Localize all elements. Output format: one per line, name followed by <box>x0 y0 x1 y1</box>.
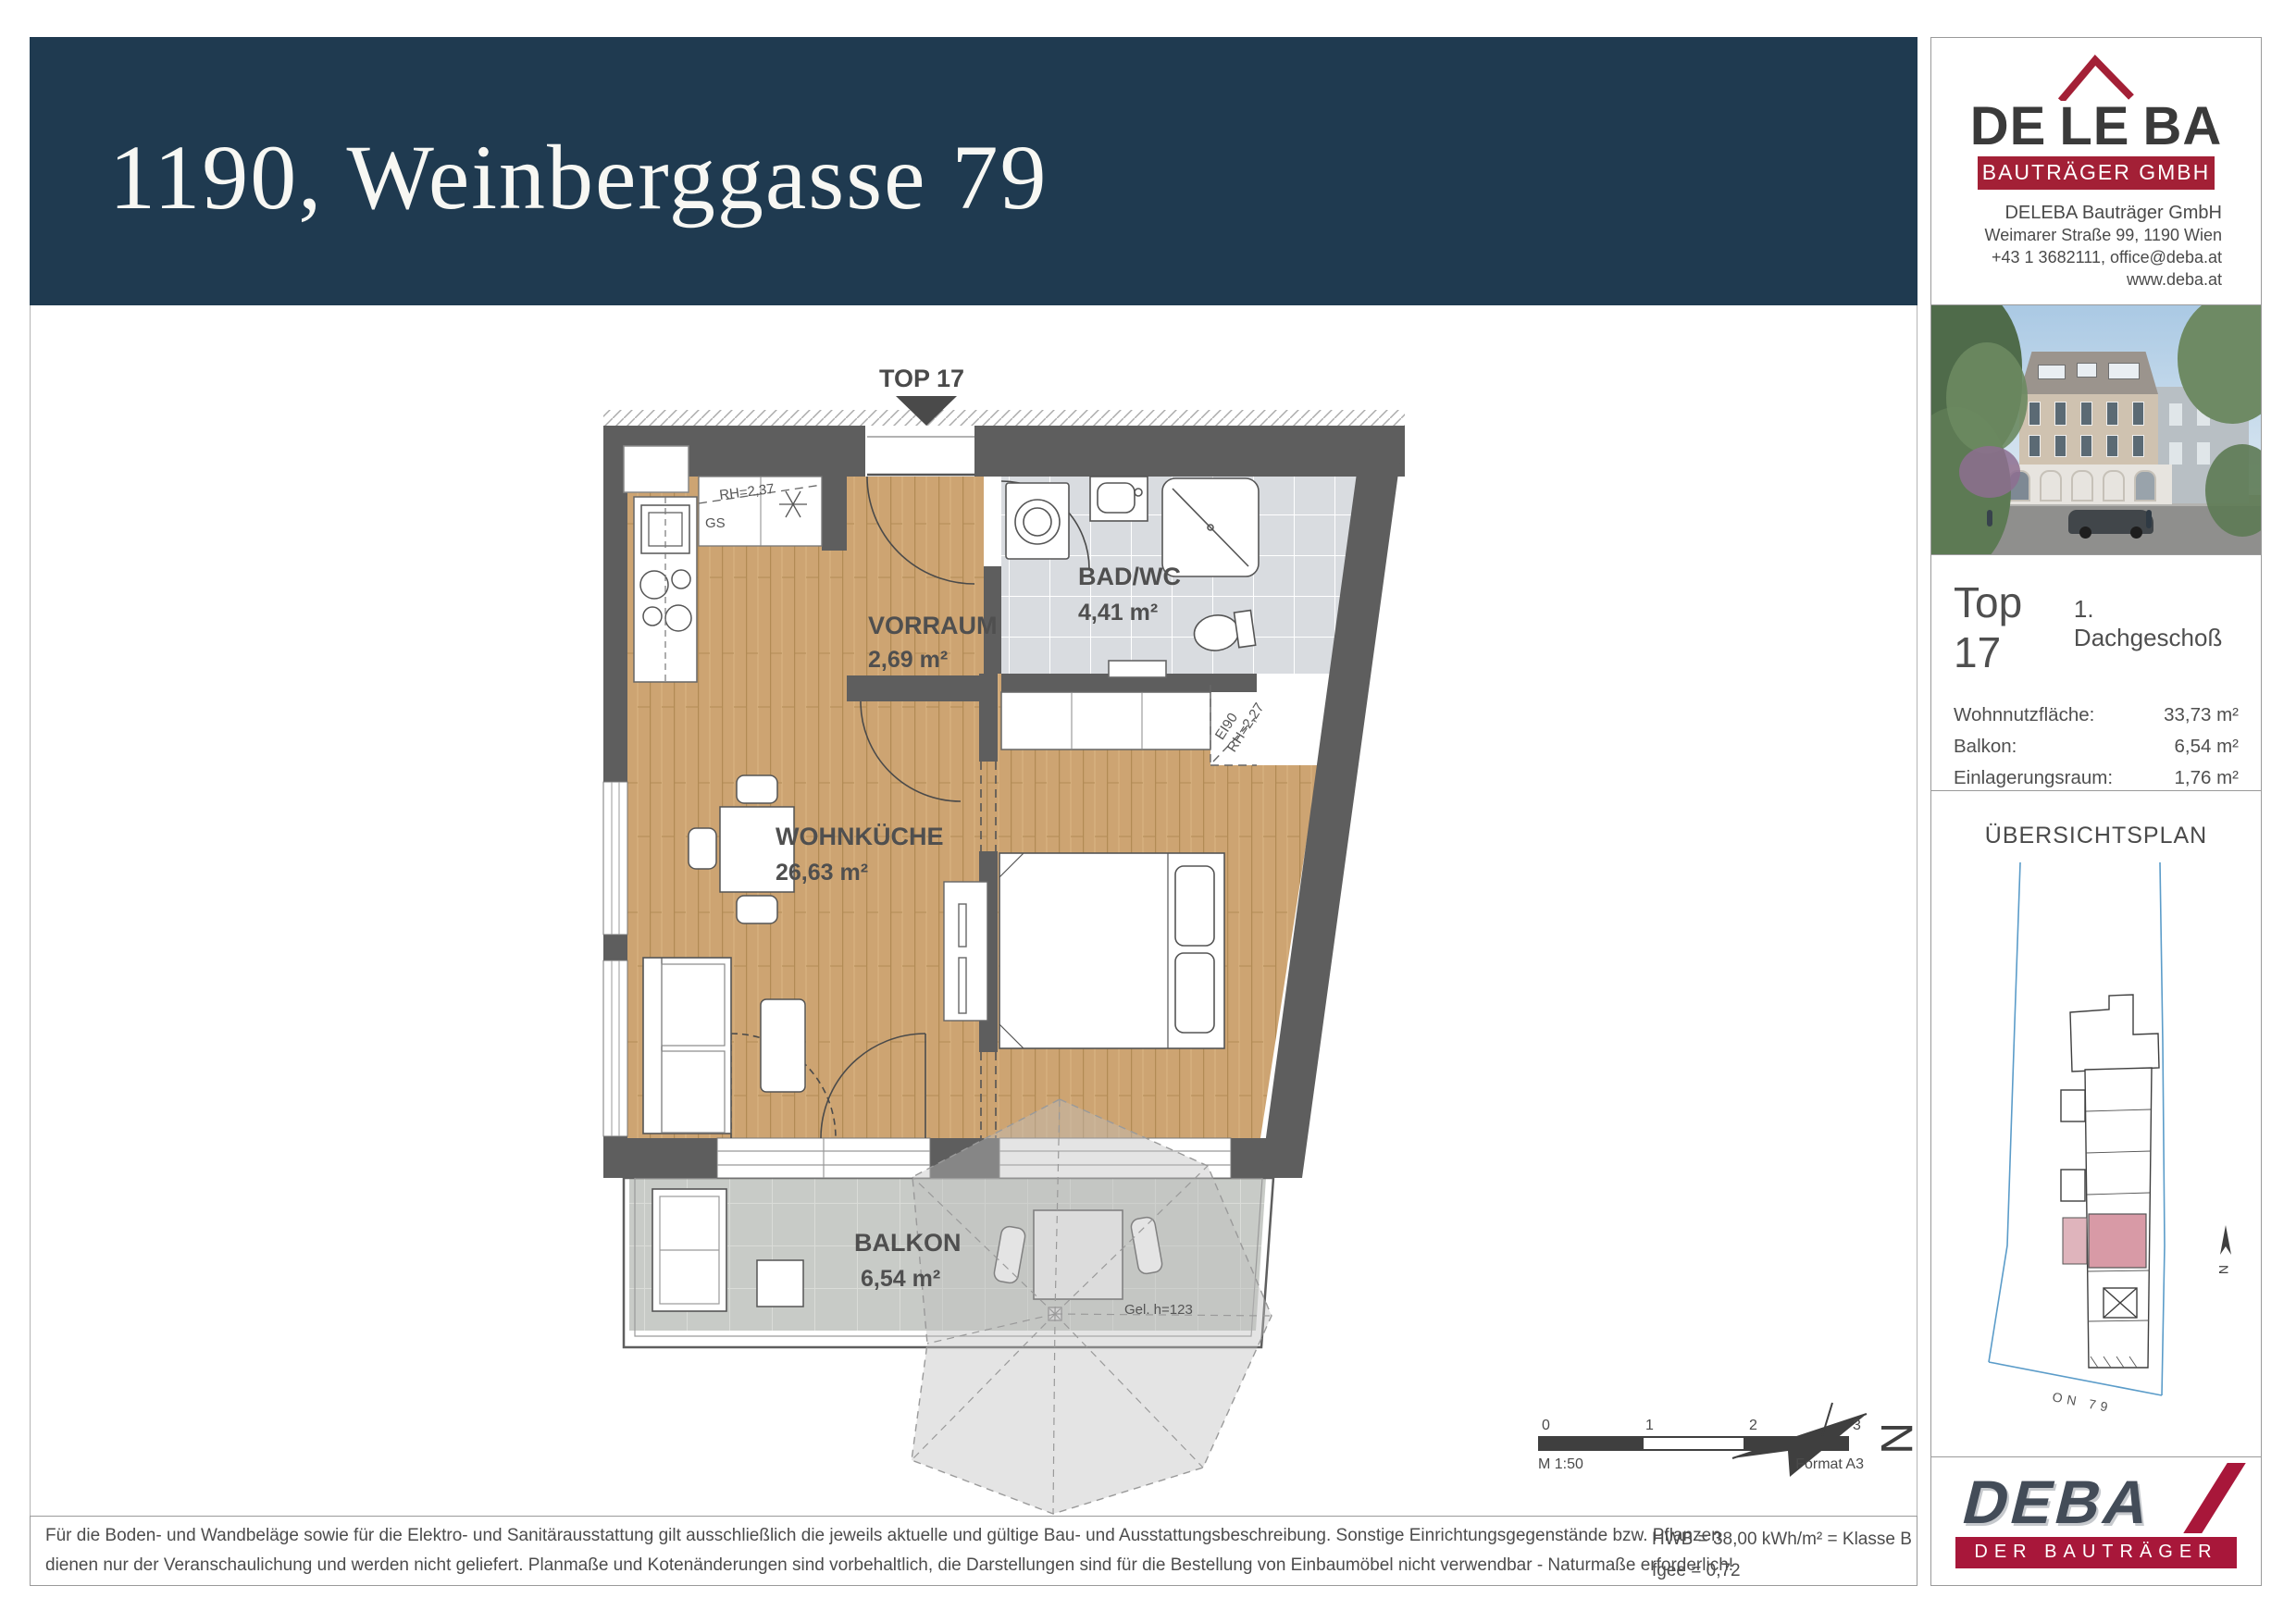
building-outline <box>2061 995 2159 1368</box>
building-photo <box>1931 305 2261 555</box>
bed <box>999 853 1224 1048</box>
room-bad-name: BAD/WC <box>1078 563 1181 590</box>
photo-facade <box>2019 394 2158 465</box>
deba-banner: DER BAUTRÄGER <box>1955 1537 2237 1568</box>
gel-label: Gel. h=123 <box>1124 1302 1193 1318</box>
company-website: www.deba.at <box>1931 269 2222 291</box>
overview-title: ÜBERSICHTSPLAN <box>1931 823 2261 849</box>
site-plan: N ON 79 <box>1931 857 2261 1449</box>
sidebar: DE LE BA BAUTRÄGER GMBH DELEBA Bauträger… <box>1930 37 2262 1586</box>
wardrobe <box>1001 692 1210 750</box>
logo-segment-ba: BA <box>2142 100 2222 154</box>
north-label: N <box>1871 1422 1920 1455</box>
room-wohnkueche-area: 26,63 m² <box>776 860 868 886</box>
deleba-logo: DE LE BA BAUTRÄGER GMBH <box>1978 53 2215 190</box>
unit-name: Top 17 <box>1954 577 2074 677</box>
energy-values: HWB = 38,00 kWh/m² = Klasse B fgee = 0,7… <box>1652 1524 1912 1587</box>
logo-banner: BAUTRÄGER GMBH <box>1978 156 2215 190</box>
disclaimer-box: Für die Boden- und Wandbeläge sowie für … <box>30 1516 1917 1586</box>
site-north-icon: N <box>2216 1225 2231 1274</box>
scale-label: M 1:50 <box>1538 1456 1583 1473</box>
room-vorraum-area: 2,69 m² <box>868 647 948 673</box>
company-address: Weimarer Straße 99, 1190 Wien <box>1931 225 2222 247</box>
top17-label: TOP 17 <box>879 365 964 392</box>
scale-tick-0: 0 <box>1542 1418 1550 1434</box>
format-label: Format A3 <box>1795 1456 1864 1473</box>
company-contact: +43 1 3682111, office@deba.at <box>1931 247 2222 269</box>
scale-tick-2: 2 <box>1749 1418 1757 1434</box>
room-bad-area: 4,41 m² <box>1078 600 1158 626</box>
company-info: DELEBA Bauträger GmbH Weimarer Straße 99… <box>1931 201 2261 291</box>
sofa <box>643 958 731 1134</box>
room-wohnkueche-name: WOHNKÜCHE <box>776 823 944 850</box>
unit-row-wohnnutzflaeche: Wohnnutzfläche:33,73 m² <box>1954 700 2239 731</box>
deba-logo-section: DEBA DER BAUTRÄGER <box>1931 1457 2261 1585</box>
fgee-value: fgee = 0,72 <box>1652 1555 1912 1587</box>
unit-row-einlagerungsraum: Einlagerungsraum:1,76 m² <box>1954 762 2239 791</box>
overview-plan-section: ÜBERSICHTSPLAN <box>1931 791 2261 1457</box>
neighbour-hatch <box>603 410 1405 426</box>
highlighted-unit <box>2089 1214 2146 1268</box>
scale-tick-3: 3 <box>1853 1418 1861 1434</box>
scale-tick-1: 1 <box>1645 1418 1654 1434</box>
gs-label: GS <box>705 515 726 531</box>
deba-slash-icon <box>2183 1463 2245 1533</box>
company-logo-section: DE LE BA BAUTRÄGER GMBH DELEBA Bauträger… <box>1931 38 2261 305</box>
unit-floor: 1. Dachgeschoß <box>2074 595 2239 652</box>
company-name: DELEBA Bauträger GmbH <box>1931 201 2222 225</box>
room-vorraum-name: VORRAUM <box>868 612 998 639</box>
photo-main-building <box>2019 352 2158 504</box>
deba-wordmark: DEBA <box>1956 1467 2162 1537</box>
page-title: 1190, Weinberggasse 79 <box>109 124 1049 230</box>
scale-bar-segments <box>1538 1436 1864 1451</box>
unit-info-section: Top 17 1. Dachgeschoß Wohnnutzfläche:33,… <box>1931 555 2261 791</box>
coffee-table <box>761 999 805 1092</box>
header: 1190, Weinberggasse 79 <box>30 37 1917 305</box>
deba-logo: DEBA DER BAUTRÄGER <box>1955 1470 2237 1572</box>
roof-icon <box>1978 53 2215 101</box>
photo-ground-floor <box>2001 465 2172 504</box>
room-balkon-name: BALKON <box>854 1229 962 1257</box>
unit-row-balkon: Balkon:6,54 m² <box>1954 731 2239 762</box>
street-number-label: ON 79 <box>2051 1389 2113 1415</box>
bath-bench <box>1109 661 1166 677</box>
room-balkon-area: 6,54 m² <box>861 1266 940 1292</box>
photo-car <box>2068 510 2153 534</box>
disclaimer-line-2: dienen nur der Veranschaulichung und wer… <box>45 1555 1733 1576</box>
disclaimer-line-1: Für die Boden- und Wandbeläge sowie für … <box>45 1526 1721 1546</box>
tv-board <box>944 882 987 1021</box>
scale-bar: 0 1 2 3 M 1:50 Format A3 <box>1538 1418 1864 1477</box>
logo-segment-de: DE <box>1970 100 2047 154</box>
floor-plan: GS RH=2,37 EI90 RH=2,27 <box>602 352 1453 1518</box>
svg-text:N: N <box>2216 1265 2231 1274</box>
hwb-value: HWB = 38,00 kWh/m² = Klasse B <box>1652 1524 1912 1555</box>
logo-segment-le: LE <box>2059 100 2129 154</box>
